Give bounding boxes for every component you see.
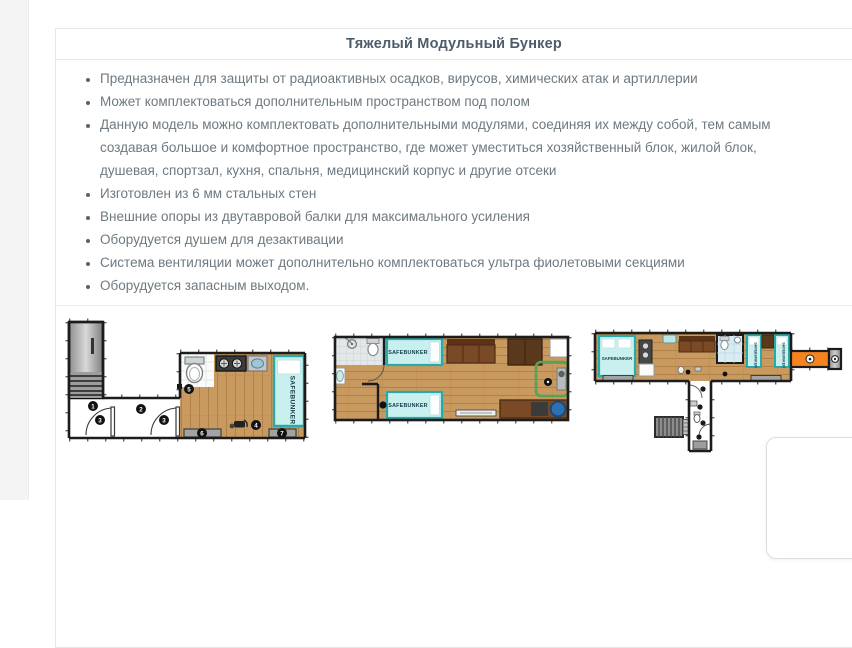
- svg-text:3: 3: [98, 417, 102, 424]
- svg-text:7: 7: [280, 430, 284, 437]
- svg-text:1: 1: [91, 403, 95, 410]
- bed: SAFEBUNKER: [274, 356, 304, 426]
- kitchen-counter: [639, 340, 654, 376]
- bed-brand-label: SAFEBUNKER: [388, 350, 427, 356]
- bed-brand-label: SAFEBUNKER: [754, 342, 758, 368]
- feature-item: Изготовлен из 6 мм стальных стен: [100, 182, 812, 205]
- toilet: [185, 357, 204, 383]
- door-knob: [379, 401, 386, 408]
- bed-brand-label: SAFEBUNKER: [602, 356, 633, 361]
- floorplan-gallery: SAFEBUNKER 1: [56, 305, 852, 636]
- nightstand: [762, 335, 774, 348]
- double-bed: SAFEBUNKER: [599, 336, 635, 376]
- svg-text:3: 3: [162, 417, 166, 424]
- bed-brand-label: SAFEBUNKER: [289, 376, 296, 425]
- svg-text:6: 6: [200, 430, 204, 437]
- bathroom: [717, 335, 743, 363]
- feature-item: Внешние опоры из двутавровой балки для м…: [100, 205, 812, 228]
- bed-brand-label: SAFEBUNKER: [782, 342, 786, 368]
- page: { "panel": { "title": "Тяжелый Модульный…: [0, 0, 852, 500]
- side-table: [550, 339, 568, 357]
- wall-sink: [335, 368, 345, 384]
- panel-header: Тяжелый Модульный Бункер: [56, 29, 852, 60]
- feature-item: Система вентиляции может дополнительно к…: [100, 251, 812, 274]
- feature-item: Оборудуется запасным выходом.: [100, 274, 812, 297]
- feature-list: Предназначен для защиты от радиоактивных…: [56, 67, 812, 305]
- kitchen-sink: [663, 335, 676, 343]
- exit-hatch: [829, 349, 841, 369]
- single-bed: SAFEBUNKER: [775, 335, 789, 368]
- svg-text:5: 5: [187, 386, 191, 393]
- sofa: [447, 339, 495, 363]
- kitchen-sink: [248, 356, 267, 371]
- floorplan-living-module: SAFEBUNKER SAFEBUNKER: [332, 332, 572, 424]
- feature-item: Предназначен для защиты от радиоактивных…: [100, 67, 812, 90]
- stool: [551, 402, 566, 417]
- floating-widget[interactable]: [766, 437, 852, 559]
- sofa: [679, 336, 715, 352]
- feature-item: Данную модель можно комплектовать дополн…: [100, 113, 812, 182]
- single-bed: SAFEBUNKER: [747, 335, 761, 368]
- bed-brand-label: SAFEBUNKER: [388, 403, 427, 409]
- svg-text:2: 2: [139, 406, 143, 413]
- page-left-gutter: [0, 0, 29, 500]
- entry-staircase: [69, 322, 103, 398]
- floorplan-extended-module: SAFEBUNKER: [591, 327, 843, 455]
- floor-radiator: [456, 410, 496, 416]
- exit-tunnel: [791, 351, 829, 367]
- feature-item: Оборудуется душем для дезактивации: [100, 228, 812, 251]
- stove: [216, 356, 246, 371]
- svg-text:4: 4: [254, 422, 258, 429]
- bed: SAFEBUNKER: [387, 339, 442, 365]
- floorplan-entrance-module: SAFEBUNKER 1: [56, 316, 331, 456]
- bed: SAFEBUNKER: [387, 392, 442, 418]
- bunker-info-panel: Тяжелый Модульный Бункер Предназначен дл…: [55, 28, 852, 648]
- feature-item: Может комплектоваться дополнительным про…: [100, 90, 812, 113]
- wardrobe: [508, 339, 542, 365]
- toilet: [367, 339, 379, 356]
- page-title: Тяжелый Модульный Бункер: [346, 36, 562, 52]
- side-staircase: [655, 417, 689, 437]
